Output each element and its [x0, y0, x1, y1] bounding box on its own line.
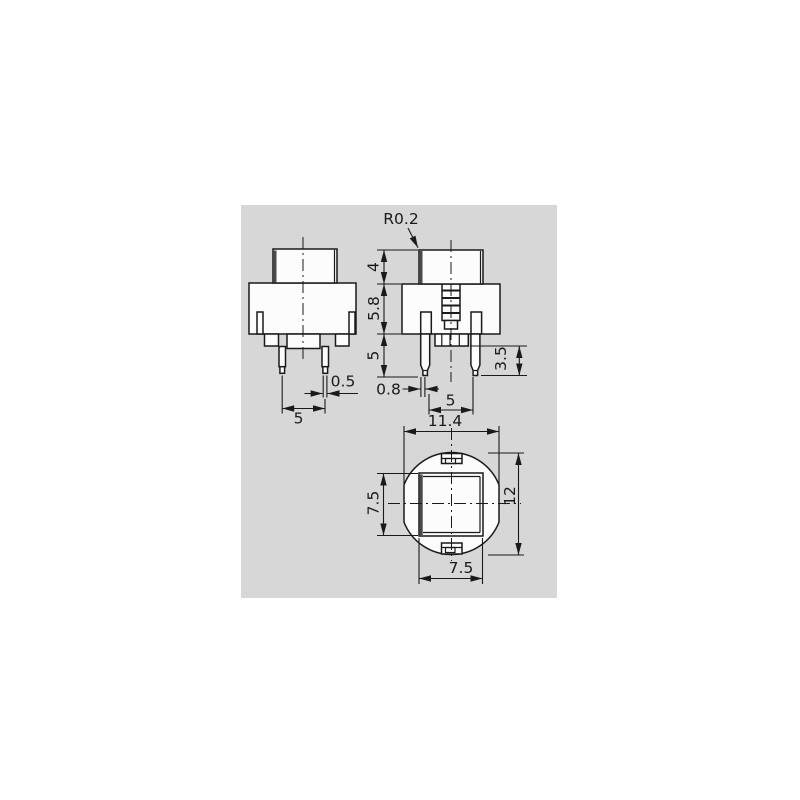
technical-drawing: 0.5 5 R0.2 4 [0, 0, 800, 800]
label-outer-diameter: 12 [501, 486, 519, 506]
side-notch-right [349, 312, 355, 334]
label-side-pin-pitch: 5 [294, 410, 304, 428]
side-pin-right-tip [323, 367, 328, 374]
front-bottom-block [435, 334, 468, 346]
label-pin-length: 5 [365, 351, 383, 361]
label-front-pin-width: 0.8 [376, 381, 401, 399]
label-corner-radius: R0.2 [383, 210, 418, 228]
side-notch-left [257, 312, 263, 334]
side-pin-right [322, 347, 329, 367]
side-pin-left-tip [280, 367, 285, 374]
label-body-height: 5.8 [365, 296, 383, 321]
label-top-cap-height: 7.5 [365, 491, 383, 516]
plunger-foot [445, 321, 458, 330]
side-tab-left [265, 334, 279, 346]
label-cap-height: 4 [365, 262, 383, 272]
front-pin-right [471, 334, 480, 376]
front-pin-left [421, 334, 430, 376]
front-pin-root-right [471, 312, 482, 334]
label-side-pin-width: 0.5 [331, 373, 356, 391]
side-pin-left [279, 347, 286, 367]
front-pin-root-left [421, 312, 432, 334]
side-tab-right [336, 334, 350, 346]
label-front-pin-pitch: 5 [446, 392, 456, 410]
side-cap [273, 249, 337, 283]
technical-drawing-page: 0.5 5 R0.2 4 [0, 0, 800, 800]
label-pin-tip-length: 3.5 [492, 346, 510, 371]
label-top-cap-width: 7.5 [449, 559, 474, 577]
label-across-flats: 11.4 [428, 412, 463, 430]
